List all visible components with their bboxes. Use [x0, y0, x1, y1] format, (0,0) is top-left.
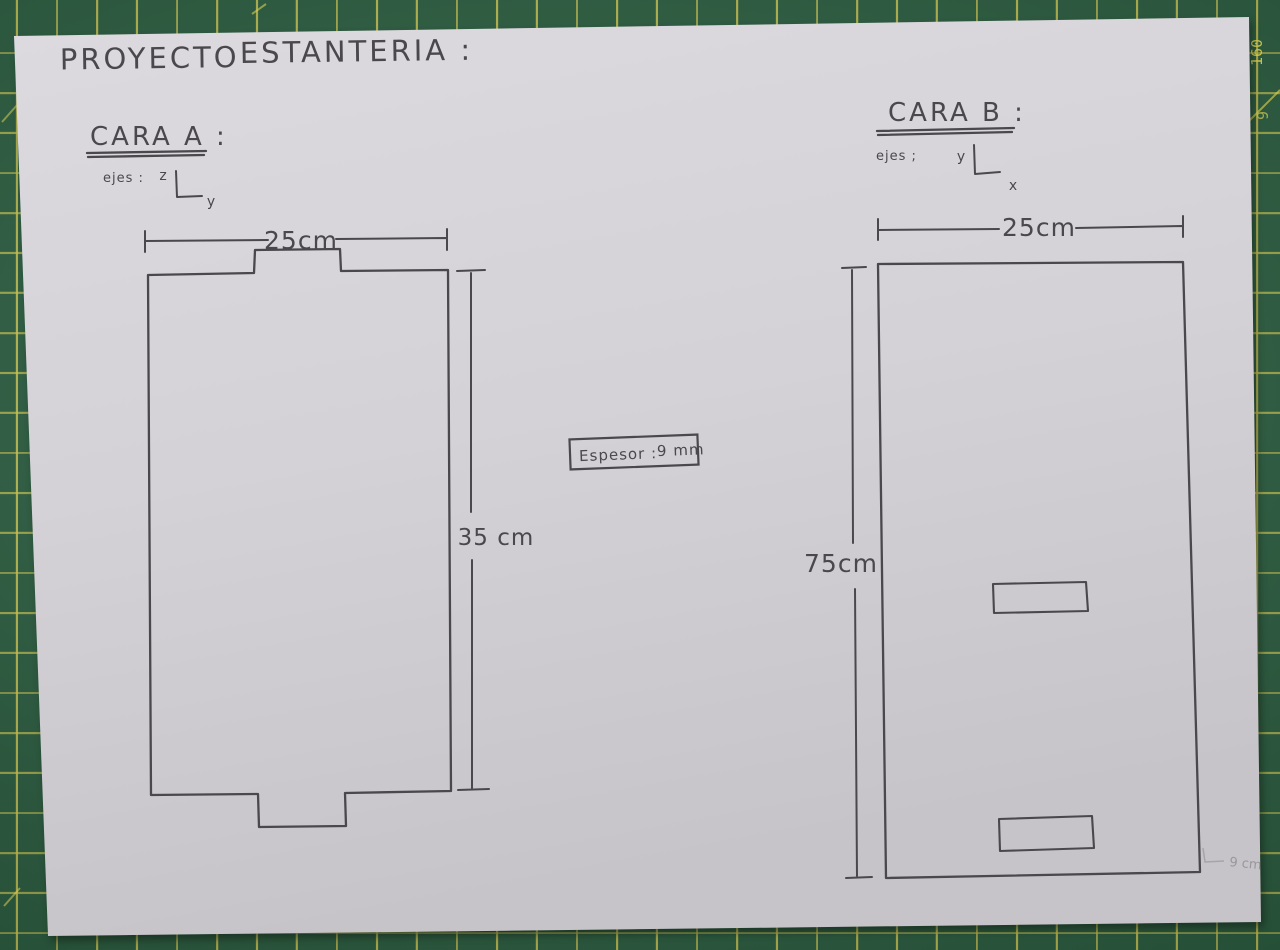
- cara-a-width-value: 25cm: [264, 226, 338, 255]
- cara-a-heading: CARA A :: [90, 122, 228, 152]
- cara-a-axes-label: ejes :: [103, 171, 144, 186]
- thickness-note-label: Espesor :: [579, 444, 658, 465]
- cara-b-axes-label: ejes ;: [876, 149, 917, 164]
- photo-of-hand-drawn-shelf-plan: 160 9: [0, 0, 1280, 950]
- mat-diagonal-mark-bottom-left: [4, 888, 20, 906]
- cara-b-height-value: 75cm: [804, 549, 878, 578]
- mat-diagonal-mark-top-left: [252, 4, 266, 14]
- cara-a-axis-y-label: y: [207, 194, 215, 210]
- cara-b-heading: CARA B :: [888, 98, 1026, 128]
- thickness-note-value: 9 mm: [657, 440, 705, 460]
- sketch-drawing-svg: 160 9: [0, 0, 1280, 950]
- cara-b-axis-x-label: x: [1009, 178, 1017, 194]
- cara-a-axis-z-label: z: [159, 168, 166, 184]
- cara-b-width-value: 25cm: [1002, 213, 1076, 242]
- title-word-proyecto: PROYECTO: [60, 40, 240, 77]
- cara-a-height-value: 35 cm: [458, 525, 535, 551]
- title-word-estanteria: ESTANTERIA :: [240, 33, 474, 70]
- cara-b-axis-y-label: y: [957, 149, 965, 165]
- mat-ruler-number-160: 160: [1248, 39, 1266, 66]
- mat-diagonal-mark-left: [2, 104, 18, 122]
